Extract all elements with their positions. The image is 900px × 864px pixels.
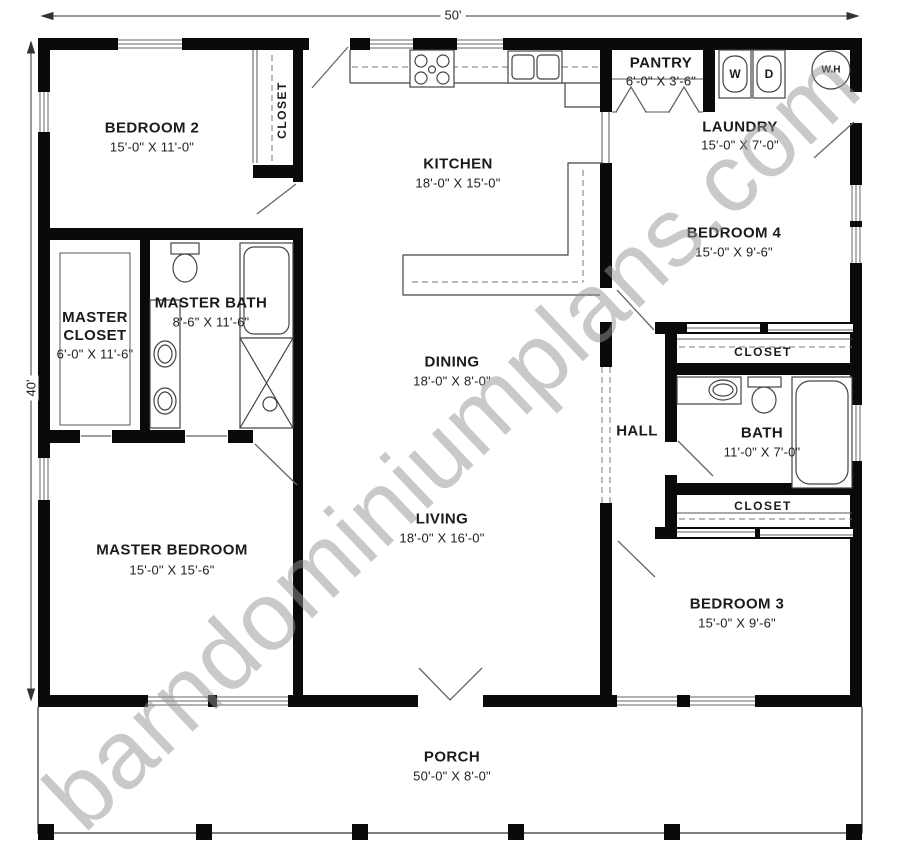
room-dims-dining: 18'-0" X 8'-0" bbox=[413, 374, 491, 389]
room-label-laundry: LAUNDRY bbox=[702, 119, 778, 136]
shower-icon bbox=[240, 338, 293, 428]
room-label-dining: DINING bbox=[425, 354, 480, 371]
room-dims-bath: 11'-0" X 7'-0" bbox=[724, 445, 801, 460]
room-label-bedroom-4: BEDROOM 4 bbox=[687, 225, 781, 242]
room-dims-kitchen: 18'-0" X 15'-0" bbox=[415, 176, 500, 191]
closet-label-lower: CLOSET bbox=[734, 499, 792, 513]
room-label-kitchen: KITCHEN bbox=[423, 156, 492, 173]
room-dims-pantry: 6'-0" X 3'-6" bbox=[626, 74, 696, 89]
dryer-label: D bbox=[765, 67, 774, 81]
washer-label: W bbox=[729, 67, 740, 81]
master-bath-fixtures bbox=[150, 243, 293, 428]
room-label-pantry: PANTRY bbox=[630, 55, 692, 72]
kitchen-fixtures bbox=[350, 50, 603, 295]
room-label-porch: PORCH bbox=[424, 749, 480, 766]
stove-icon bbox=[410, 50, 454, 87]
room-label-master-bath: MASTER BATH bbox=[155, 295, 267, 312]
overall-height-dimension: 40' bbox=[24, 376, 39, 401]
room-dims-porch: 50'-0" X 8'-0" bbox=[413, 769, 491, 784]
room-dims-bedroom-2: 15'-0" X 11'-0" bbox=[110, 140, 194, 155]
room-dims-master-bedroom: 15'-0" X 15'-6" bbox=[129, 563, 214, 578]
room-dims-bedroom-4: 15'-0" X 9'-6" bbox=[695, 245, 773, 260]
bathtub-icon bbox=[792, 377, 852, 488]
room-label-master-bedroom: MASTER BEDROOM bbox=[96, 542, 247, 559]
overall-width-dimension: 50' bbox=[441, 8, 466, 23]
vanity-icon bbox=[677, 377, 741, 404]
room-label-bedroom-2: BEDROOM 2 bbox=[105, 120, 199, 137]
floor-plan: BEDROOM 2 15'-0" X 11'-0" CLOSET KITCHEN… bbox=[0, 0, 900, 864]
closet-label-upper: CLOSET bbox=[734, 345, 792, 359]
closet-label-bedroom-2: CLOSET bbox=[275, 81, 289, 139]
room-dims-living: 18'-0" X 16'-0" bbox=[399, 531, 484, 546]
kitchen-sink-icon bbox=[508, 51, 562, 83]
room-label-bath: BATH bbox=[741, 425, 783, 442]
porch-posts bbox=[38, 824, 862, 840]
toilet-icon bbox=[748, 377, 781, 413]
room-label-master-closet: MASTER CLOSET bbox=[43, 309, 147, 345]
room-label-hall: HALL bbox=[616, 423, 658, 440]
room-dims-laundry: 15'-0" X 7'-0" bbox=[701, 138, 779, 153]
room-dims-master-bath: 8'-6" X 11'-6" bbox=[173, 315, 250, 330]
room-dims-master-closet: 6'-0" X 11'-6" bbox=[57, 347, 134, 362]
room-label-living: LIVING bbox=[416, 511, 468, 528]
water-heater-label: W.H bbox=[822, 65, 841, 76]
room-dims-bedroom-3: 15'-0" X 9'-6" bbox=[698, 616, 776, 631]
toilet-icon bbox=[171, 243, 199, 282]
room-label-bedroom-3: BEDROOM 3 bbox=[690, 596, 784, 613]
